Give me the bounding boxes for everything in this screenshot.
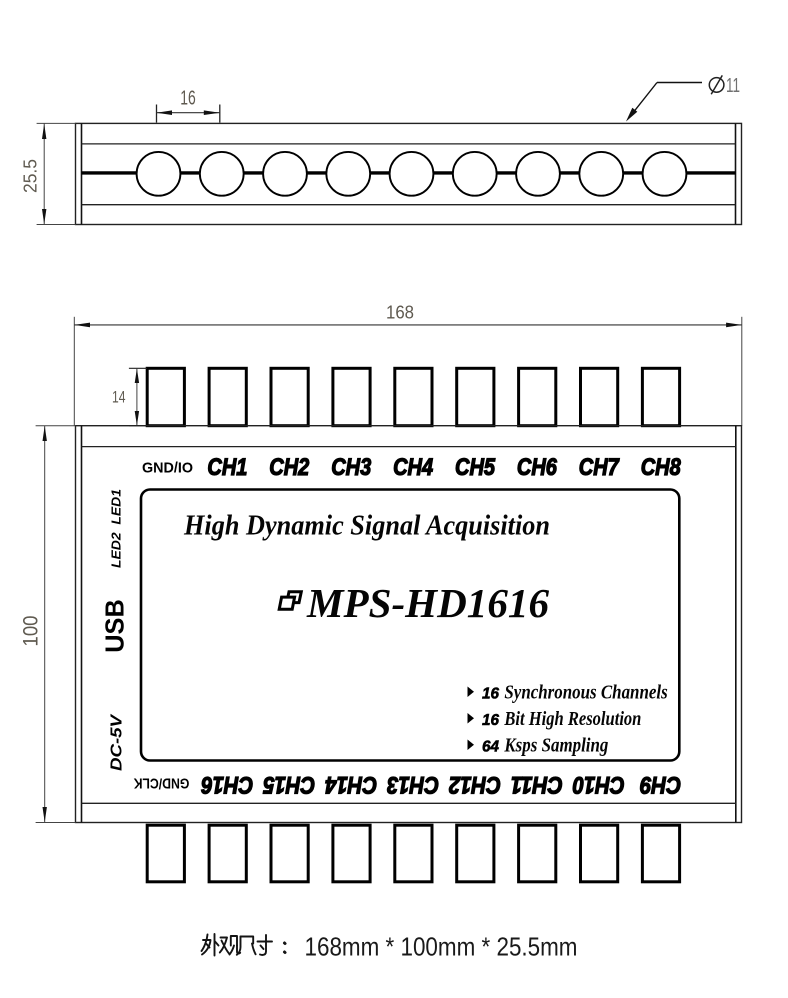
svg-text:CH3: CH3 [331,454,372,481]
svg-text:CH12: CH12 [448,771,501,798]
svg-text:168: 168 [386,301,414,322]
svg-text:14: 14 [112,388,126,406]
svg-text:CH1: CH1 [207,454,247,481]
svg-text:CH4: CH4 [393,454,433,481]
svg-text:168mm * 100mm * 25.5mm: 168mm * 100mm * 25.5mm [305,932,578,962]
svg-text:GND/IO: GND/IO [142,459,193,476]
svg-text:CH13: CH13 [387,771,440,798]
svg-text:Synchronous Channels: Synchronous Channels [504,682,667,704]
svg-text:25.5: 25.5 [21,159,41,193]
svg-text:16: 16 [482,686,499,703]
svg-text:LED2 LED1: LED2 LED1 [109,489,124,568]
svg-text:CH7: CH7 [579,454,620,481]
svg-text:CH8: CH8 [641,454,682,481]
svg-text:CH10: CH10 [572,771,625,798]
svg-text:Ksps Sampling: Ksps Sampling [504,734,609,756]
svg-text:MPS-HD1616: MPS-HD1616 [306,580,549,626]
svg-text:CH9: CH9 [640,771,682,798]
svg-text:16: 16 [180,87,196,109]
svg-text:USB: USB [100,599,130,653]
svg-text:CH14: CH14 [325,771,377,798]
svg-text:Bit High Resolution: Bit High Resolution [504,708,642,730]
svg-text:DC-5V: DC-5V [109,713,126,771]
svg-text:GND/CLK: GND/CLK [133,775,189,792]
svg-text:100: 100 [20,616,43,647]
svg-text:CH6: CH6 [517,454,558,481]
svg-text:CH15: CH15 [263,771,316,798]
svg-text:CH11: CH11 [511,771,563,798]
svg-text:11: 11 [726,74,740,97]
svg-text:CH5: CH5 [455,454,496,481]
svg-text:CH16: CH16 [201,771,254,798]
svg-text:CH2: CH2 [269,454,310,481]
svg-text:High Dynamic Signal Acquisitio: High Dynamic Signal Acquisition [183,510,550,542]
svg-text:64: 64 [482,738,499,755]
svg-text:16: 16 [482,712,499,729]
